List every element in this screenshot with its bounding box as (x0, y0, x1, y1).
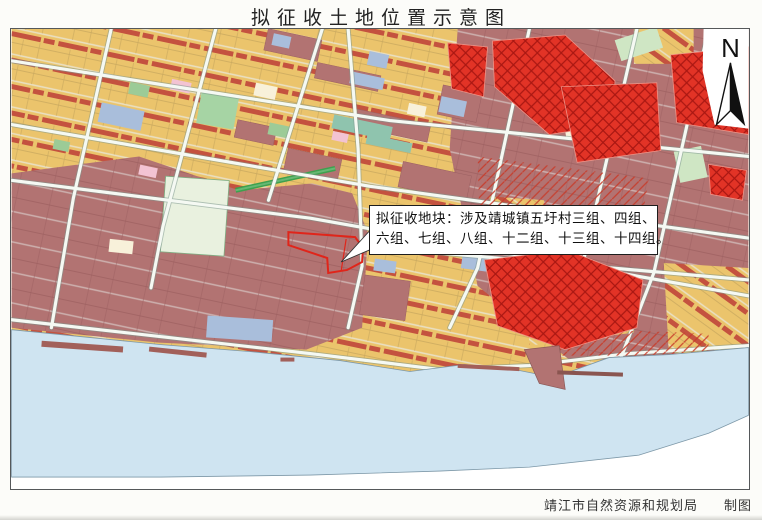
expropriation-callout: 拟征收地块：涉及靖城镇五圩村三组、四组、 六组、七组、八组、十二组、十三组、十四… (369, 205, 658, 255)
land-map: N 拟征收地块：涉及靖城镇五圩村三组、四组、 六组、七组、八组、十二组、十三组、… (10, 28, 750, 490)
red-zone (561, 83, 661, 163)
page-title: 拟征收土地位置示意图 (0, 3, 762, 30)
red-zone (448, 43, 488, 97)
attribution-agency: 靖江市自然资源和规划局 (544, 495, 698, 514)
red-zone (709, 164, 747, 200)
map-canvas: N (11, 29, 749, 489)
north-label: N (721, 35, 740, 63)
callout-line-1: 拟征收地块：涉及靖城镇五圩村三组、四组、 (376, 209, 652, 229)
scan-shadow (0, 515, 762, 520)
callout-line-2: 六组、七组、八组、十二组、十三组、十四组。 (376, 229, 652, 249)
map-attribution: 靖江市自然资源和规划局 制图 (544, 495, 752, 514)
attribution-credit: 制图 (724, 495, 752, 514)
